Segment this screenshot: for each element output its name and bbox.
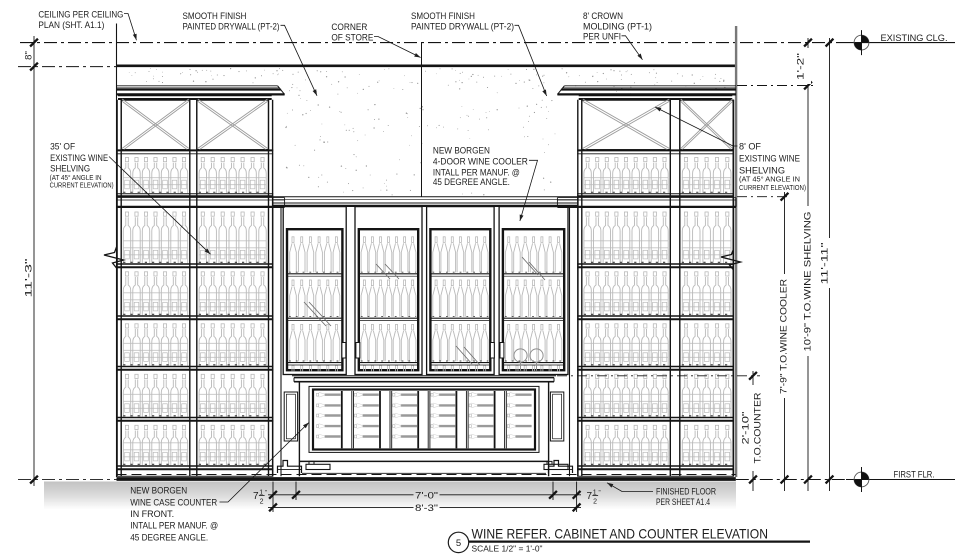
svg-text:OF STORE: OF STORE [331,32,373,43]
svg-text:NEW BORGEN: NEW BORGEN [130,486,187,497]
svg-text:11'-11": 11'-11" [820,243,831,285]
svg-text:NEW BORGEN: NEW BORGEN [433,146,490,157]
svg-text:FIRST FLR.: FIRST FLR. [894,470,935,481]
svg-text:(AT 45° ANGLE IN: (AT 45° ANGLE IN [50,174,102,182]
svg-text:SHELVING: SHELVING [739,166,785,177]
svg-text:WINE CASE COUNTER: WINE CASE COUNTER [130,497,217,508]
svg-text:CEILING PER CEILING: CEILING PER CEILING [38,9,123,20]
svg-text:EXISTING WINE: EXISTING WINE [739,154,800,165]
svg-text:2: 2 [260,499,264,506]
svg-text:": " [265,490,267,496]
svg-text:2'-10": 2'-10" [741,412,752,445]
svg-text:8' OF: 8' OF [739,142,761,153]
svg-text:(AT 45° ANGLE IN: (AT 45° ANGLE IN [739,175,800,183]
svg-text:2: 2 [593,499,597,506]
svg-text:7'-9" T.O.WINE COOLER: 7'-9" T.O.WINE COOLER [779,279,790,394]
svg-text:45 DEGREE ANGLE.: 45 DEGREE ANGLE. [130,532,208,543]
svg-text:IN FRONT.: IN FRONT. [130,509,174,520]
svg-text:PLAN (SHT. A1.1): PLAN (SHT. A1.1) [38,20,104,31]
svg-text:SMOOTH FINISH: SMOOTH FINISH [183,11,247,22]
svg-text:8'-3": 8'-3" [415,503,438,514]
svg-text:PER UNFI: PER UNFI [583,32,621,43]
svg-text:": " [599,490,601,496]
svg-text:10'-9" T.O.WINE SHELVING: 10'-9" T.O.WINE SHELVING [803,212,814,352]
svg-text:PER SHEET A1.4: PER SHEET A1.4 [656,497,710,508]
svg-text:INTALL PER MANUF. @: INTALL PER MANUF. @ [130,521,218,532]
svg-text:SHELVING: SHELVING [50,163,90,174]
svg-text:1'-2": 1'-2" [796,53,807,80]
svg-text:11'-3": 11'-3" [24,259,35,298]
svg-text:7'-0": 7'-0" [415,490,438,501]
svg-text:EXISTING CLG.: EXISTING CLG. [881,33,948,44]
svg-text:SCALE 1/2" = 1'-0": SCALE 1/2" = 1'-0" [472,545,543,554]
svg-text:WINE REFER. CABINET AND COUNTE: WINE REFER. CABINET AND COUNTER ELEVATIO… [472,526,769,541]
svg-text:CURRENT ELEVATION): CURRENT ELEVATION) [50,182,114,189]
svg-text:8' CROWN: 8' CROWN [583,11,623,22]
svg-text:5: 5 [456,538,461,549]
svg-text:45 DEGREE ANGLE.: 45 DEGREE ANGLE. [433,177,510,188]
svg-text:35' OF: 35' OF [50,142,75,153]
svg-text:SMOOTH FINISH: SMOOTH FINISH [411,11,475,22]
svg-text:PAINTED DRYWALL (PT-2): PAINTED DRYWALL (PT-2) [411,21,514,32]
svg-text:7: 7 [587,491,593,502]
svg-text:8": 8" [24,51,35,60]
svg-text:4-DOOR WINE COOLER: 4-DOOR WINE COOLER [433,156,528,167]
svg-text:PAINTED DRYWALL (PT-2): PAINTED DRYWALL (PT-2) [183,21,280,32]
svg-text:7: 7 [253,491,259,502]
svg-text:CURRENT ELEVATION): CURRENT ELEVATION) [739,185,806,192]
svg-text:T.O.COUNTER: T.O.COUNTER [753,392,764,463]
